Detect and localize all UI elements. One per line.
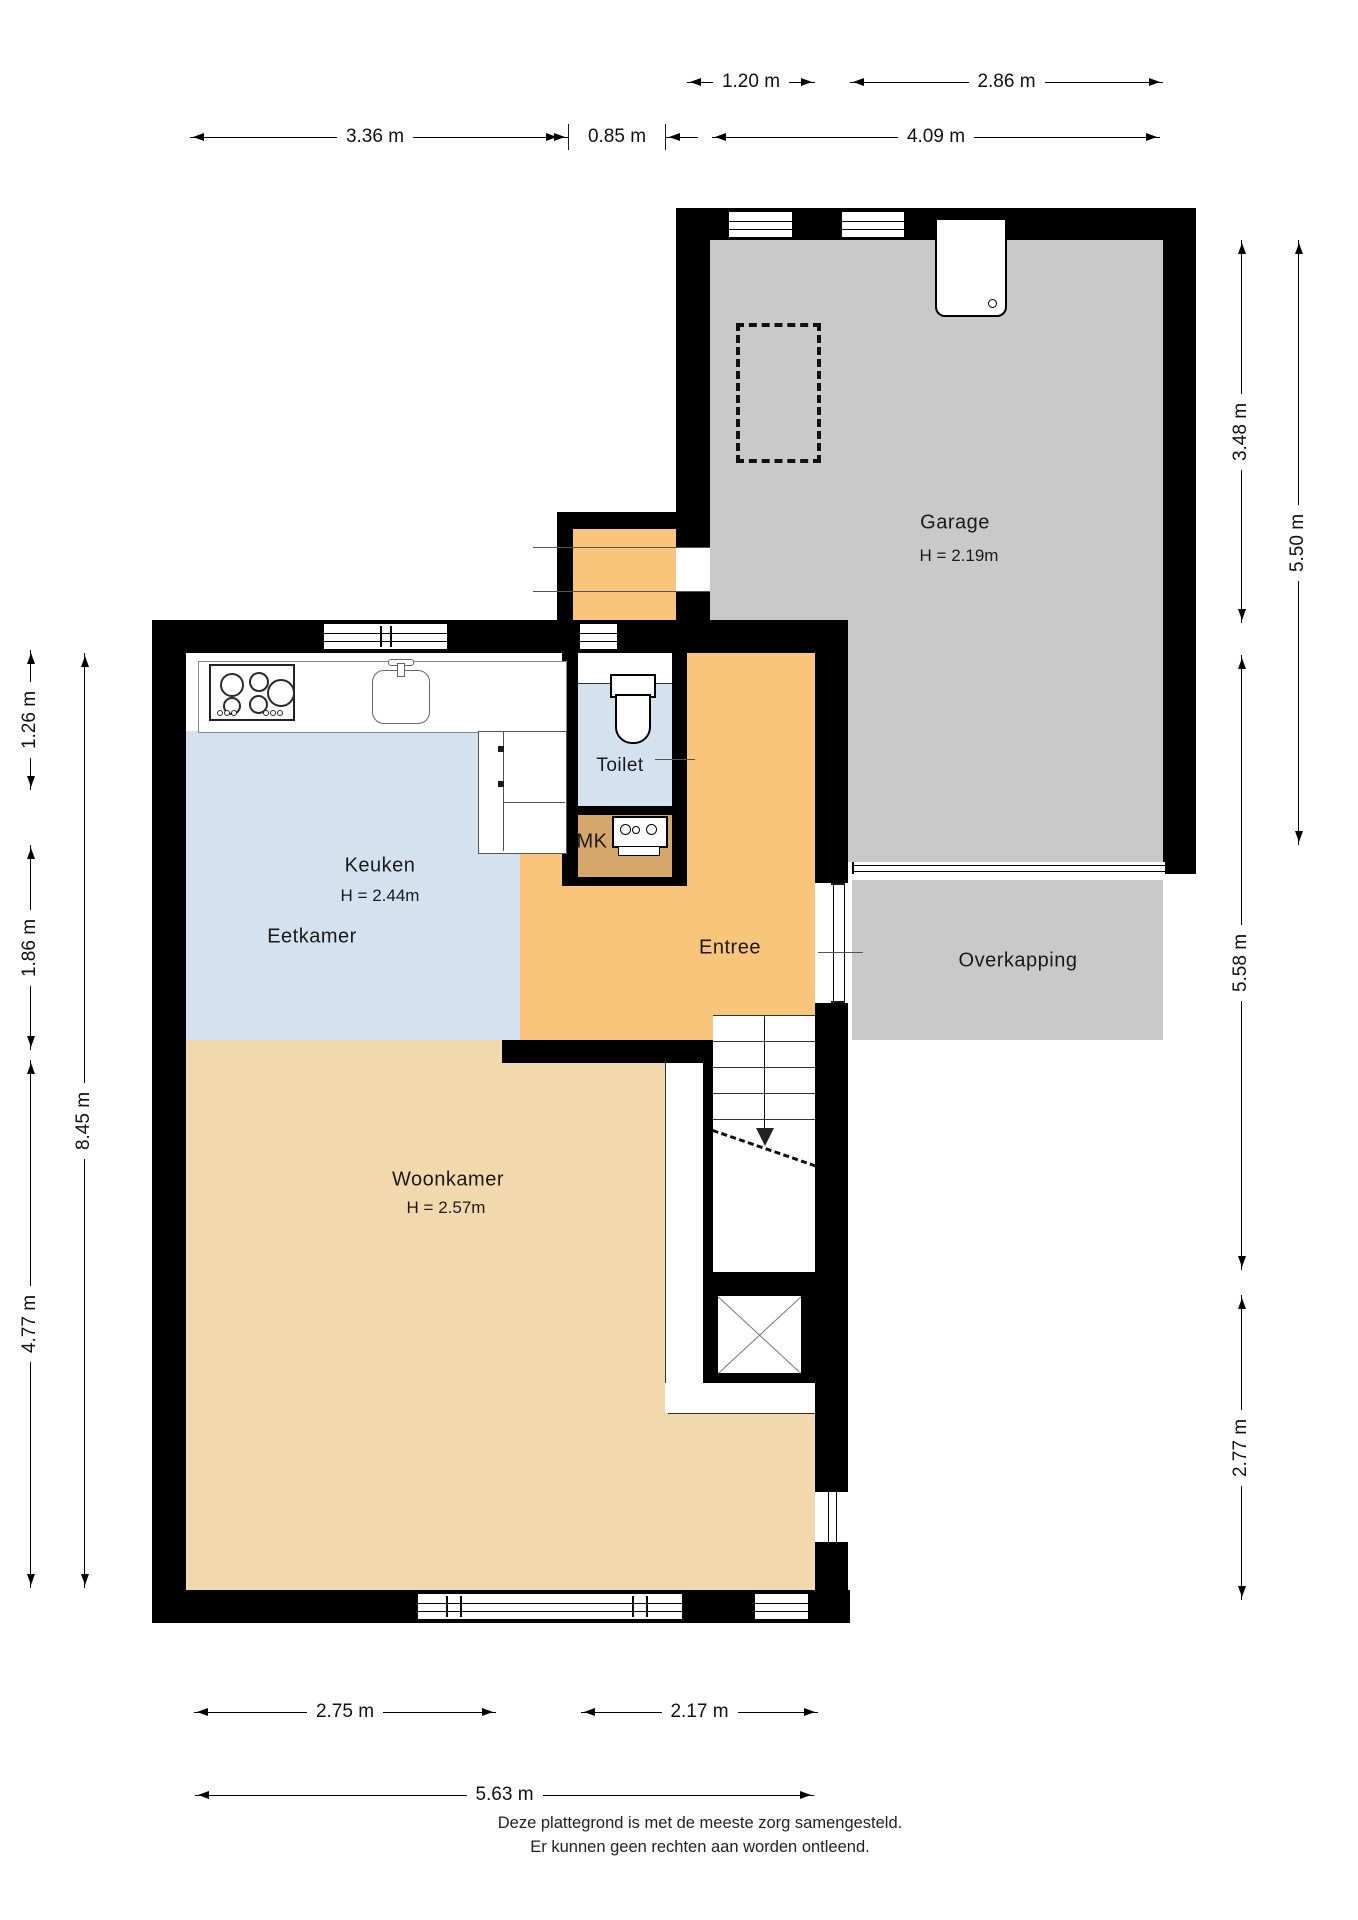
door-entree-threshold-line xyxy=(818,952,863,953)
meter-dial xyxy=(620,824,631,835)
wall-shaft-left xyxy=(702,1295,717,1372)
kitchen-cabinets xyxy=(478,731,567,854)
dashed-outline-box xyxy=(736,323,821,463)
hob-knob xyxy=(277,710,283,716)
wall-notch-top xyxy=(557,512,676,529)
door-entree-glazing xyxy=(833,883,845,1003)
label-eetkamer: Eetkamer xyxy=(267,926,357,949)
stair-side-strip xyxy=(665,1063,703,1383)
toilet-bowl xyxy=(615,694,651,744)
room-keuken-eetkamer-a xyxy=(186,731,478,1040)
room-entree-hall-b xyxy=(562,886,687,1050)
disclaimer-line-1: Deze plattegrond is met de meeste zorg s… xyxy=(498,1814,902,1833)
meter-dial xyxy=(646,824,657,835)
kitchen-cabinet-hinge-1 xyxy=(498,746,504,752)
meter-box-base xyxy=(618,846,660,856)
wall-left xyxy=(152,620,186,1623)
door-garage-line-top xyxy=(533,547,710,548)
label-woonkamer: Woonkamer xyxy=(392,1169,504,1192)
window-living-bottom-small xyxy=(753,1594,810,1619)
room-entree-main xyxy=(687,653,815,1050)
door-toilet-line xyxy=(655,759,695,760)
wall-top xyxy=(152,620,848,653)
meter-box xyxy=(612,816,668,848)
wall-toilet-mk xyxy=(562,806,687,815)
burner-icon xyxy=(249,672,269,692)
kitchen-cabinet-hinge-2 xyxy=(498,781,504,787)
wall-mk-bottom xyxy=(562,877,687,886)
window-garage-top-2 xyxy=(840,212,906,237)
room-garage-lower xyxy=(848,620,1163,862)
label-garage: Garage xyxy=(920,512,990,535)
meter-dial xyxy=(632,826,640,834)
room-woonkamer-a xyxy=(186,1040,665,1590)
wall-notch-vertical xyxy=(557,512,573,653)
hob-knob xyxy=(217,710,223,716)
kitchen-sink xyxy=(372,670,430,724)
faucet-stem-icon xyxy=(397,663,405,677)
window-living-bottom-large xyxy=(416,1594,684,1619)
stair-direction-line xyxy=(764,1018,765,1130)
wall-shaft-right xyxy=(800,1295,848,1372)
wall-right-upper xyxy=(815,653,848,883)
hob-knob xyxy=(270,710,276,716)
wall-garage-left-a xyxy=(676,208,710,548)
boiler-handle xyxy=(988,299,997,308)
label-mk: MK xyxy=(577,831,608,854)
disclaimer-line-2: Er kunnen geen rechten aan worden ontlee… xyxy=(530,1838,869,1857)
room-entree-hall-a xyxy=(520,852,562,1050)
label-entree: Entree xyxy=(699,937,761,960)
label-keuken: Keuken xyxy=(345,855,416,878)
label-woonkamer-height: H = 2.57m xyxy=(407,1198,486,1218)
window-toilet-top xyxy=(578,624,619,649)
label-garage-height: H = 2.19m xyxy=(920,546,999,566)
room-woonkamer-b xyxy=(665,1413,815,1590)
wall-garage-right xyxy=(1163,240,1196,874)
kitchen-cabinet-divider-h xyxy=(504,802,565,803)
wall-garage-left-b xyxy=(676,592,710,620)
door-entree-cap-top xyxy=(831,883,845,885)
burner-icon xyxy=(220,673,244,697)
door-entree-cap-bottom xyxy=(831,1001,845,1003)
window-living-right xyxy=(815,1490,848,1544)
hob-knob xyxy=(224,710,230,716)
window-kitchen-top xyxy=(322,624,449,649)
window-garage-top-1 xyxy=(727,212,794,237)
label-overkapping: Overkapping xyxy=(959,950,1078,973)
entree-notch xyxy=(573,529,676,620)
wall-right-lower xyxy=(815,1540,848,1623)
shaft xyxy=(717,1295,802,1374)
room-keuken-eetkamer-b xyxy=(478,852,520,1040)
wall-stair-band xyxy=(702,1272,815,1295)
burner-icon xyxy=(267,679,295,707)
wall-toilet-right xyxy=(672,653,687,886)
window-garage-glasswall xyxy=(852,862,1167,874)
stove-hob xyxy=(209,664,295,721)
label-toilet: Toilet xyxy=(596,755,643,777)
door-garage-line-bottom xyxy=(533,591,710,592)
wall-right-mid xyxy=(815,1003,848,1490)
understair-closet xyxy=(668,1383,815,1414)
hob-knob xyxy=(231,710,237,716)
floorplan-canvas: Garage H = 2.19m Toilet Keuken H = 2.44m… xyxy=(0,0,1358,1920)
hob-knob xyxy=(263,710,269,716)
label-keuken-height: H = 2.44m xyxy=(341,886,420,906)
wall-hall-bottom xyxy=(502,1040,713,1063)
